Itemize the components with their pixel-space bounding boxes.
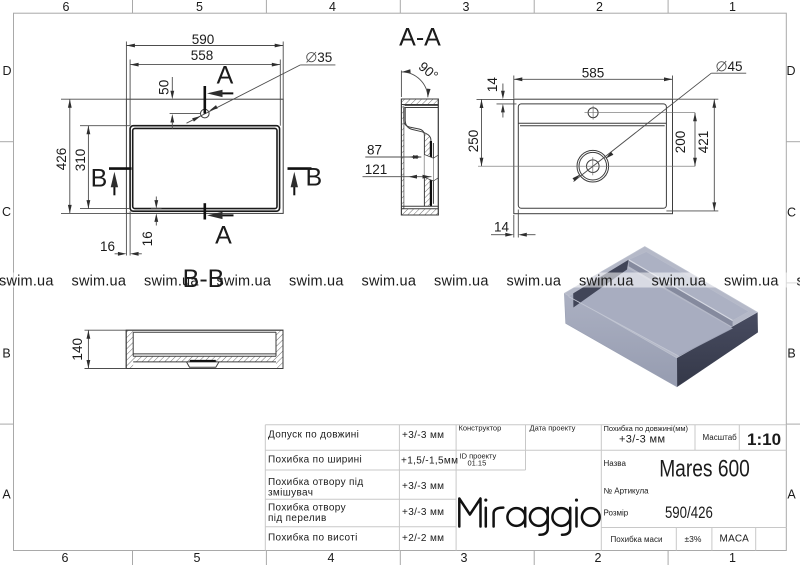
svg-text:Похибка маси: Похибка маси bbox=[611, 535, 663, 544]
svg-text:C: C bbox=[2, 205, 11, 219]
svg-text:590: 590 bbox=[192, 32, 215, 47]
svg-text:310: 310 bbox=[73, 149, 88, 172]
svg-text:swim.ua: swim.ua bbox=[434, 274, 489, 290]
svg-text:590/426: 590/426 bbox=[665, 504, 713, 523]
svg-text:swim.ua: swim.ua bbox=[217, 274, 272, 290]
svg-text:B: B bbox=[91, 165, 108, 193]
svg-text:swim.ua: swim.ua bbox=[144, 274, 199, 290]
svg-text:+3/-3 мм: +3/-3 мм bbox=[402, 481, 444, 492]
svg-text:Дата проекту: Дата проекту bbox=[530, 424, 576, 433]
svg-text:B: B bbox=[787, 347, 795, 361]
svg-text:swim.ua: swim.ua bbox=[289, 274, 344, 290]
svg-text:3: 3 bbox=[461, 551, 468, 565]
svg-text:Масштаб: Масштаб bbox=[703, 433, 738, 442]
svg-text:16: 16 bbox=[140, 231, 155, 246]
svg-text:D: D bbox=[786, 64, 795, 78]
svg-text:swim.ua: swim.ua bbox=[507, 274, 562, 290]
svg-text:A: A bbox=[2, 488, 11, 502]
svg-text:swim.ua: swim.ua bbox=[652, 274, 707, 290]
svg-text:swim.ua: swim.ua bbox=[579, 274, 634, 290]
svg-text:87: 87 bbox=[367, 142, 382, 157]
svg-text:A: A bbox=[215, 222, 232, 250]
svg-text:01.15: 01.15 bbox=[468, 459, 487, 468]
svg-text:14: 14 bbox=[485, 77, 500, 93]
svg-text:swim.ua: swim.ua bbox=[362, 274, 417, 290]
svg-text:A-A: A-A bbox=[399, 24, 441, 52]
svg-text:swim.ua: swim.ua bbox=[724, 274, 779, 290]
svg-text:5: 5 bbox=[194, 551, 201, 565]
svg-text:3: 3 bbox=[463, 0, 470, 14]
svg-text:14: 14 bbox=[494, 220, 510, 235]
svg-text:1:10: 1:10 bbox=[747, 430, 781, 449]
svg-text:Похибка отвору під: Похибка отвору під bbox=[268, 476, 364, 488]
svg-text:Похибка отвору: Похибка отвору bbox=[268, 502, 346, 514]
svg-text:426: 426 bbox=[54, 148, 69, 171]
svg-text:swim.ua: swim.ua bbox=[0, 274, 54, 290]
svg-text:B: B bbox=[305, 164, 322, 192]
svg-text:1: 1 bbox=[729, 0, 736, 14]
svg-text:35: 35 bbox=[317, 50, 332, 65]
svg-text:140: 140 bbox=[70, 338, 85, 361]
svg-text:250: 250 bbox=[466, 130, 481, 153]
svg-text:6: 6 bbox=[63, 0, 70, 14]
svg-text:2: 2 bbox=[595, 551, 602, 565]
svg-text:200: 200 bbox=[673, 131, 688, 154]
svg-text:A: A bbox=[787, 488, 796, 502]
svg-text:±3%: ±3% bbox=[685, 534, 702, 544]
svg-text:Розмір: Розмір bbox=[604, 509, 629, 518]
svg-text:+3/-3 мм: +3/-3 мм bbox=[402, 507, 444, 518]
svg-text:D: D bbox=[2, 64, 11, 78]
svg-text:558: 558 bbox=[191, 48, 214, 63]
svg-text:+1,5/-1,5мм: +1,5/-1,5мм bbox=[401, 456, 458, 467]
svg-text:змішувач: змішувач bbox=[268, 488, 313, 499]
svg-text:Похибка по ширині: Похибка по ширині bbox=[268, 454, 362, 466]
svg-text:A: A bbox=[217, 62, 234, 90]
svg-text:585: 585 bbox=[582, 66, 605, 81]
svg-text:Mares 600: Mares 600 bbox=[659, 454, 750, 482]
svg-text:swim.ua: swim.ua bbox=[797, 274, 800, 290]
svg-text:B: B bbox=[2, 347, 10, 361]
svg-text:+2/-2 мм: +2/-2 мм bbox=[402, 533, 444, 544]
svg-text:121: 121 bbox=[365, 162, 388, 177]
svg-text:16: 16 bbox=[100, 239, 115, 254]
svg-text:421: 421 bbox=[696, 131, 711, 154]
svg-text:під перелив: під перелив bbox=[268, 513, 327, 524]
svg-text:6: 6 bbox=[62, 551, 69, 565]
svg-text:Допуск по довжині: Допуск по довжині bbox=[268, 430, 359, 441]
svg-text:Назва: Назва bbox=[604, 459, 627, 468]
svg-text:2: 2 bbox=[596, 0, 603, 14]
svg-text:+3/-3 мм: +3/-3 мм bbox=[619, 434, 665, 446]
svg-text:C: C bbox=[787, 206, 796, 220]
svg-text:Похибка по висоті: Похибка по висоті bbox=[268, 532, 358, 544]
svg-text:4: 4 bbox=[329, 0, 336, 14]
svg-text:Похибка по довжині(мм): Похибка по довжині(мм) bbox=[604, 424, 689, 433]
svg-text:Конструктор: Конструктор bbox=[459, 424, 502, 433]
svg-text:1: 1 bbox=[729, 551, 736, 565]
svg-text:50: 50 bbox=[157, 80, 172, 95]
svg-text:№ Артикула: № Артикула bbox=[604, 487, 650, 496]
svg-text:МАСА: МАСА bbox=[720, 534, 750, 545]
svg-text:swim.ua: swim.ua bbox=[72, 274, 127, 290]
svg-text:4: 4 bbox=[328, 551, 335, 565]
svg-text:+3/-3 мм: +3/-3 мм bbox=[402, 430, 444, 441]
svg-text:5: 5 bbox=[196, 0, 203, 14]
svg-text:45: 45 bbox=[728, 59, 743, 74]
